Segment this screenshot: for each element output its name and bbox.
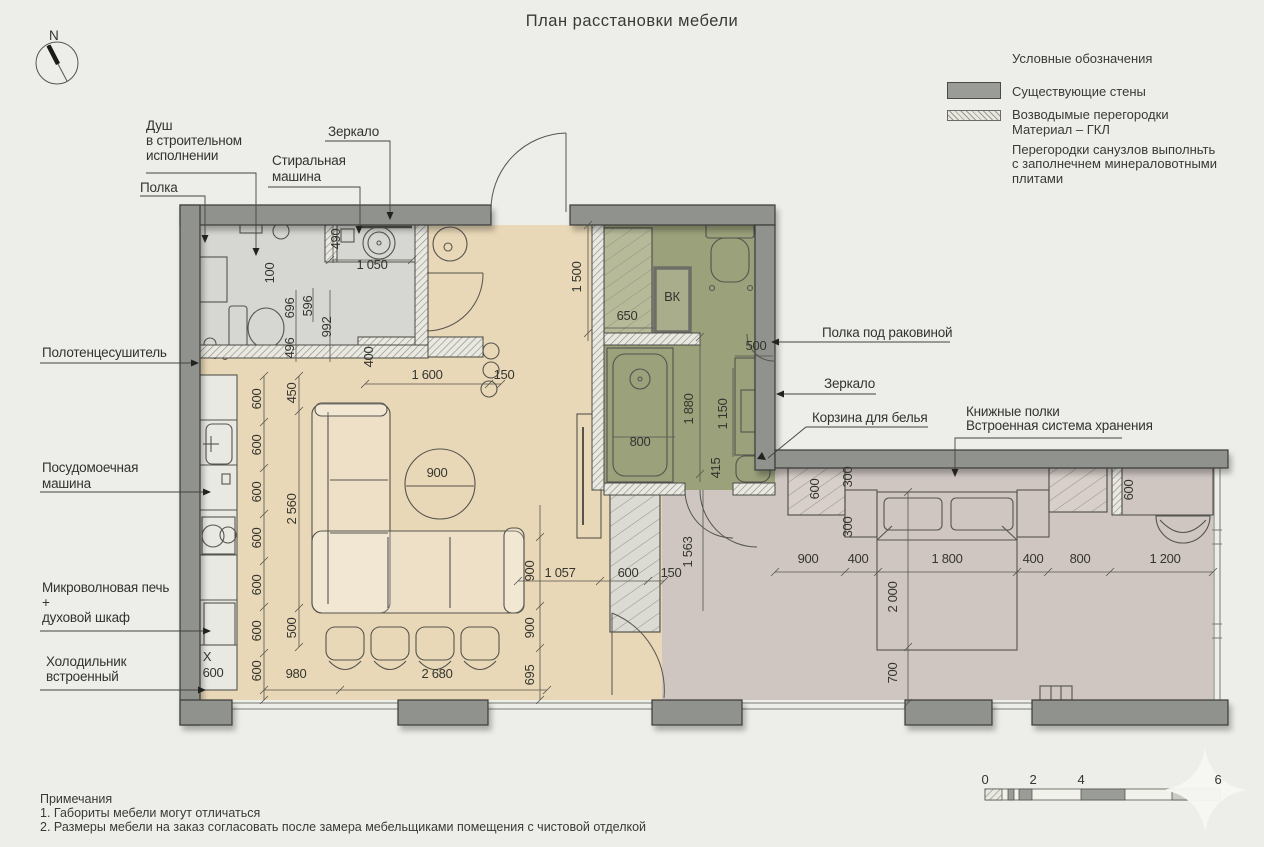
label-washing-machine: машина: [272, 169, 322, 184]
label-dishwasher: машина: [42, 476, 92, 491]
dimension-label: 2 000: [885, 581, 900, 612]
dimension-label: 980: [286, 666, 307, 681]
dimension-label: 600: [249, 528, 264, 549]
dimension-label: 1 500: [569, 261, 584, 292]
dimension-label: 1 150: [715, 398, 730, 429]
wall-bedroom-top: [775, 450, 1228, 468]
scale-label: 2: [1030, 772, 1037, 787]
existing-wall-swatch: [947, 82, 1001, 99]
legend-partitions-line1: Возводымые перегородки: [1012, 107, 1169, 122]
dimension-label: 800: [630, 434, 651, 449]
dimension-label: 900: [522, 561, 537, 582]
label-microwave-oven: духовой шкаф: [42, 610, 130, 625]
compass-needle: [49, 46, 59, 65]
dimension-label: 500: [746, 338, 767, 353]
label-microwave-oven: +: [42, 595, 50, 610]
dimension-label: 900: [427, 465, 448, 480]
legend-existing-walls: Существующие стены: [1012, 84, 1146, 99]
dimension-label: 2 560: [284, 493, 299, 524]
legend-note-line1: Перегородки санузлов выполньть: [1012, 142, 1215, 157]
wall-top-right: [570, 205, 775, 225]
label-washing-machine: Стиральная: [272, 153, 346, 168]
dimension-label: 600: [1121, 480, 1136, 501]
scale-bar: [985, 748, 1247, 832]
legend-note-line2: с заполнечнем минераловотными плитами: [1012, 156, 1257, 186]
label-shower: Душ: [146, 118, 172, 133]
dimension-label: 700: [885, 663, 900, 684]
entrance-door-swing: [491, 133, 566, 212]
dimension-label: 400: [1023, 551, 1044, 566]
dimension-label: 496: [282, 338, 297, 359]
bedroom-floor: [662, 468, 1213, 700]
dimension-label: 600: [249, 435, 264, 456]
notes-title: Примечания: [40, 792, 740, 806]
label-shelf: Полка: [140, 180, 178, 195]
pier: [652, 700, 742, 725]
label-mirror-right: Зеркало: [824, 376, 875, 391]
scale-label: 6: [1215, 772, 1222, 787]
dimension-label: 1 057: [544, 565, 575, 580]
floor-plan-sheet: 6006006006006006006004502 560500X6009802…: [0, 0, 1264, 847]
label-microwave-oven: Микроволновая печь: [42, 580, 169, 595]
wall-left: [180, 205, 200, 725]
kitchen-cabinet-run: [200, 375, 237, 690]
dimension-label: 300: [840, 467, 855, 488]
dimension-label: 650: [617, 308, 638, 323]
dimension-label: 1 200: [1149, 551, 1180, 566]
dimension-label: 100: [262, 263, 277, 284]
dimension-label: 600: [249, 661, 264, 682]
dimension-label: 1 050: [356, 257, 387, 272]
dimension-label: ВК: [664, 289, 680, 304]
label-dishwasher: Посудомоечная: [42, 460, 138, 475]
dimension-label: 150: [661, 565, 682, 580]
legend-title: Условные обозначения: [1012, 51, 1152, 66]
dimension-label: 2 680: [421, 666, 452, 681]
label-shower: в строительном: [146, 133, 242, 148]
notes: Примечания 1. Габориты мебели могут отли…: [40, 792, 740, 834]
label-bookshelves: Книжные полки: [966, 404, 1060, 419]
dimension-label: 400: [848, 551, 869, 566]
dimension-label: 600: [249, 482, 264, 503]
pier: [180, 700, 232, 725]
legend: Условные обозначения Существующие стены …: [947, 48, 1257, 178]
dimension-label: 900: [522, 618, 537, 639]
pier: [905, 700, 992, 725]
dimension-label: 1 880: [681, 393, 696, 424]
dimension-label: 490: [328, 229, 343, 250]
dimension-label: 900: [798, 551, 819, 566]
page-title: План расстановки мебели: [0, 12, 1264, 31]
wall-top-left: [180, 205, 491, 225]
pier: [1032, 700, 1228, 725]
dimension-label: 600: [203, 665, 224, 680]
dimension-label: 695: [522, 665, 537, 686]
label-fridge: Холодильник: [46, 654, 127, 669]
dimension-label: 500: [284, 618, 299, 639]
dimension-label: 1 563: [680, 536, 695, 567]
legend-partitions-line2: Материал – ГКЛ: [1012, 122, 1110, 137]
notes-item2: 2. Размеры мебели на заказ согласовать п…: [40, 820, 740, 834]
label-shelf-under-sink: Полка под раковиной: [822, 325, 952, 340]
dimension-label: 800: [1070, 551, 1091, 566]
dimension-label: 600: [807, 479, 822, 500]
dimension-label: 696: [282, 298, 297, 319]
new-partition-swatch: [947, 110, 1001, 121]
dimension-label: 600: [249, 621, 264, 642]
pier: [398, 700, 488, 725]
label-shower: исполнении: [146, 148, 218, 163]
compass: [36, 42, 78, 84]
label-towel-dryer: Полотенцесушитель: [42, 345, 167, 360]
scale-label: 4: [1078, 772, 1085, 787]
watermark-star: [1163, 748, 1247, 832]
dimension-label: 300: [840, 517, 855, 538]
dimension-label: 150: [494, 367, 515, 382]
dimension-label: 450: [284, 383, 299, 404]
dimension-label: 1 600: [411, 367, 442, 382]
label-laundry-basket: Корзина для белья: [812, 410, 927, 425]
dimension-label: 600: [249, 389, 264, 410]
dimension-label: 400: [361, 347, 376, 368]
dimension-label: 415: [708, 458, 723, 479]
label-bookshelves: Встроенная система хранения: [966, 418, 1153, 433]
dimension-label: 596: [300, 296, 315, 317]
dimension-label: 992: [319, 317, 334, 338]
label-mirror-left: Зеркало: [328, 124, 379, 139]
dimension-label: X: [203, 649, 212, 664]
dimension-label: 1 800: [931, 551, 962, 566]
label-fridge: встроенный: [46, 669, 119, 684]
scale-label: 0: [982, 772, 989, 787]
dimension-label: 600: [618, 565, 639, 580]
notes-item1: 1. Габориты мебели могут отличаться: [40, 806, 740, 820]
dimension-label: 600: [249, 575, 264, 596]
